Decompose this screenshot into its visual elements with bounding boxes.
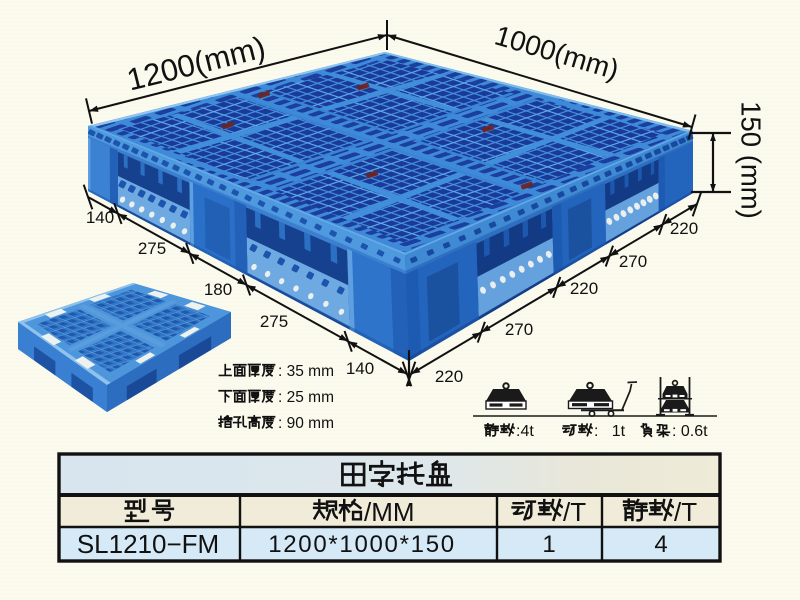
svg-text:/T: /T bbox=[563, 497, 586, 527]
svg-text:275: 275 bbox=[138, 239, 166, 258]
svg-text:: 0.6t: : 0.6t bbox=[672, 423, 708, 440]
svg-text:220: 220 bbox=[570, 279, 598, 298]
svg-text:/MM: /MM bbox=[364, 497, 415, 527]
svg-text:: 90 mm: : 90 mm bbox=[278, 415, 334, 432]
svg-text:/T: /T bbox=[674, 497, 697, 527]
svg-text::4t: :4t bbox=[516, 423, 534, 440]
svg-text:270: 270 bbox=[619, 252, 647, 271]
svg-text:180: 180 bbox=[204, 280, 232, 299]
svg-text:: 35 mm: : 35 mm bbox=[278, 363, 334, 380]
svg-text:270: 270 bbox=[505, 320, 533, 339]
svg-text:1200*1000*150: 1200*1000*150 bbox=[268, 531, 456, 558]
svg-text:220: 220 bbox=[435, 367, 463, 386]
svg-text:150 (mm): 150 (mm) bbox=[736, 101, 767, 219]
svg-text:220: 220 bbox=[670, 219, 698, 238]
svg-text:140: 140 bbox=[346, 359, 374, 378]
svg-text:1: 1 bbox=[542, 531, 555, 558]
svg-text:: 25 mm: : 25 mm bbox=[278, 389, 334, 406]
svg-text:: 1t: : 1t bbox=[594, 423, 626, 440]
svg-text:4: 4 bbox=[654, 531, 667, 558]
svg-text:SL1210−FM: SL1210−FM bbox=[77, 529, 219, 559]
svg-text:275: 275 bbox=[260, 312, 288, 331]
svg-text:140: 140 bbox=[86, 208, 114, 227]
